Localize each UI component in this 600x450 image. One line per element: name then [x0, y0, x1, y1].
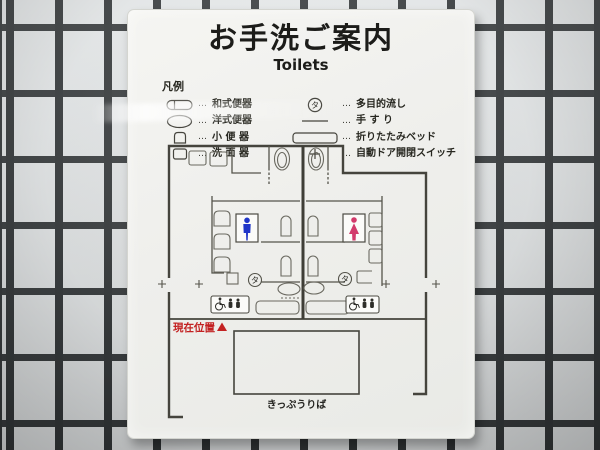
urinal	[214, 257, 230, 272]
squat-toilet	[281, 256, 291, 276]
sink	[278, 283, 300, 295]
western-toilet-symbol	[162, 114, 198, 129]
current-location-marker	[217, 323, 227, 332]
washbasin	[369, 213, 382, 227]
accessible-facilities-right	[346, 296, 379, 313]
counter	[227, 273, 238, 284]
multipurpose-sink-mark: タ	[251, 276, 259, 285]
washbasin	[369, 249, 382, 263]
squat-toilet	[281, 216, 291, 236]
legend-label: 和式便器	[212, 100, 252, 110]
toilet-guide-sign: お手洗ご案内 Toilets 凡例 … 和式便器	[127, 9, 475, 439]
legend-dots: …	[198, 117, 212, 126]
handrail-symbol	[288, 117, 342, 125]
urinal	[214, 234, 230, 249]
legend-label: 手 す り	[356, 116, 393, 126]
washbasin	[210, 152, 227, 166]
sign-title: お手洗ご案内	[128, 23, 474, 55]
multipurpose-sink-symbol: タ	[288, 97, 342, 113]
mens-room-sign	[236, 214, 258, 242]
counter	[357, 271, 372, 283]
washbasin	[369, 231, 382, 245]
folding-bed	[306, 301, 349, 314]
western-toilet	[309, 148, 324, 170]
multipurpose-sinks: タ タ	[249, 273, 352, 287]
legend-dots: …	[198, 100, 212, 109]
legend-dots: …	[342, 117, 356, 126]
accessible-facilities-left	[211, 296, 249, 313]
legend-dots: …	[342, 100, 356, 109]
washbasin	[189, 151, 206, 165]
squat-toilet-symbol	[162, 98, 198, 112]
squat-toilet	[308, 256, 318, 276]
urinal	[214, 211, 230, 226]
photo-scene: お手洗ご案内 Toilets 凡例 … 和式便器	[0, 0, 600, 450]
legend-item-squat-toilet: … 和式便器	[162, 98, 288, 111]
legend-label: 洋式便器	[212, 116, 252, 126]
floor-plan: タ タ	[153, 140, 453, 430]
folding-bed	[256, 301, 299, 314]
legend-item-multipurpose-sink: タ … 多目的流し	[288, 98, 462, 111]
legend-item-western-toilet: … 洋式便器	[162, 115, 288, 128]
squat-toilet	[308, 216, 318, 236]
current-location-label: 現在位置	[173, 321, 215, 334]
legend-item-handrail: … 手 す り	[288, 115, 462, 128]
ticket-office-label: きっぷうりば	[267, 398, 327, 411]
current-location: 現在位置	[173, 321, 227, 334]
womens-room-sign	[343, 214, 365, 242]
ticket-office-outline	[234, 331, 359, 394]
legend-heading: 凡例	[162, 78, 462, 94]
sign-subtitle: Toilets	[128, 56, 474, 74]
western-toilet	[275, 148, 290, 170]
multipurpose-sink-mark: タ	[341, 275, 349, 284]
svg-text:タ: タ	[311, 101, 319, 110]
legend-label: 多目的流し	[356, 100, 406, 110]
sink	[304, 282, 324, 294]
